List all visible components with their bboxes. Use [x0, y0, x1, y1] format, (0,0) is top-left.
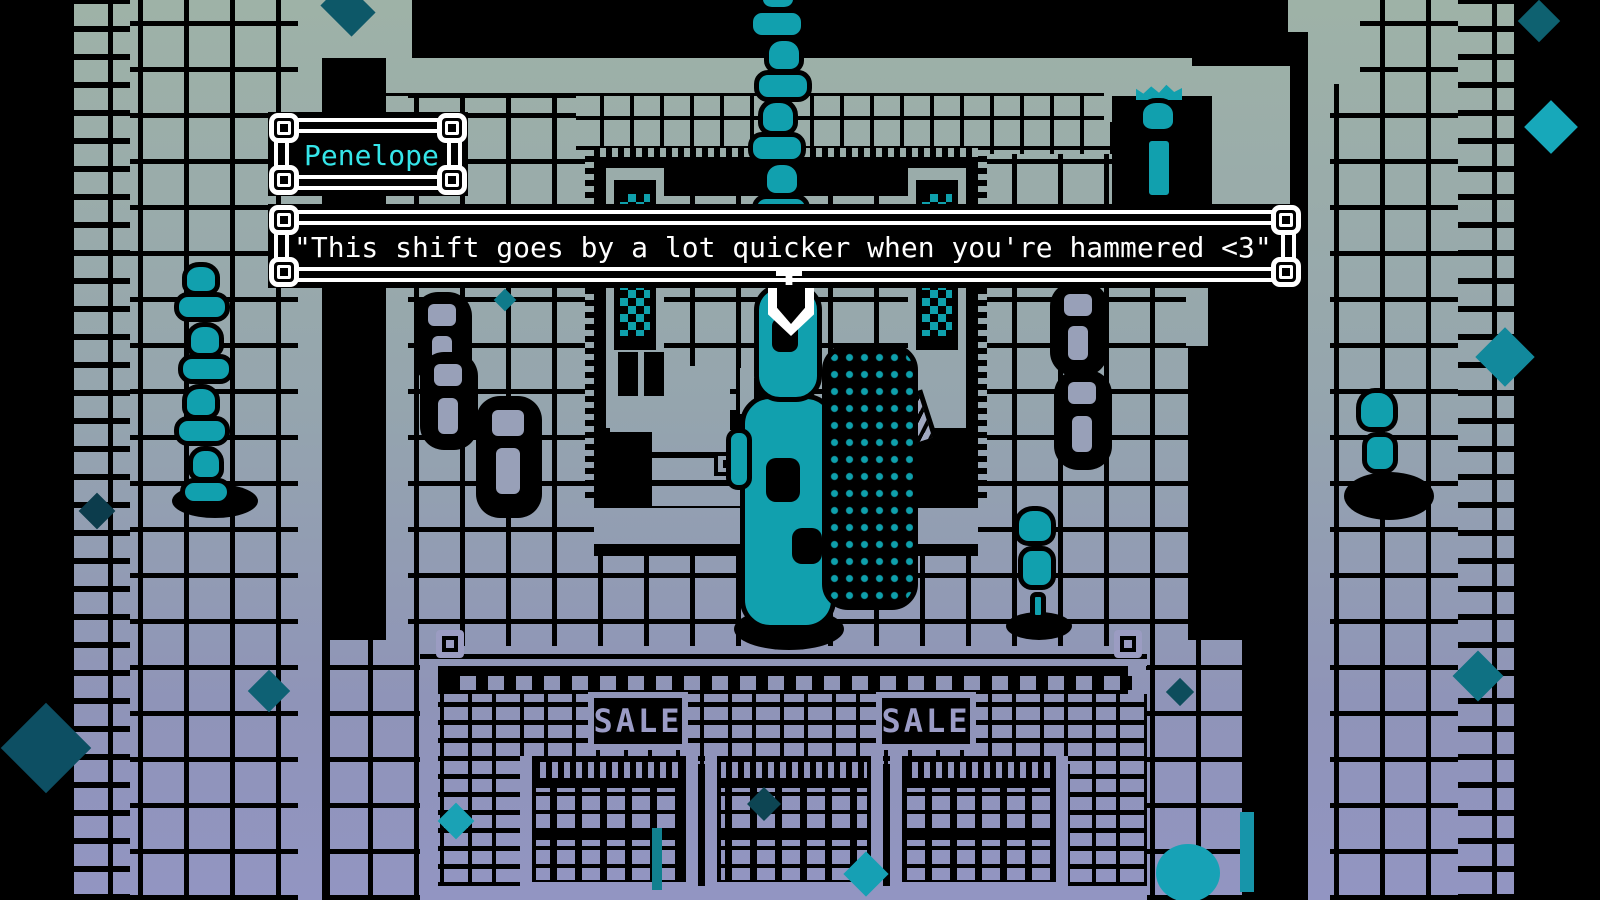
dialogue-text: "This shift goes by a lot quicker when y… — [294, 234, 1272, 262]
frame-screw — [269, 165, 299, 195]
store-left-floor — [330, 640, 422, 900]
bottle — [618, 352, 638, 396]
frame-bar — [447, 140, 462, 168]
frame-bar — [296, 118, 440, 133]
top-right-step-block — [1312, 32, 1360, 84]
particle — [652, 828, 662, 890]
particle — [1240, 812, 1254, 892]
sale-sign-label: SALE — [882, 698, 970, 744]
store-brick-right-column — [1070, 760, 1147, 888]
dark-customer-at-counter — [822, 344, 918, 610]
floor-machine — [1050, 282, 1108, 376]
rail-screw-left — [436, 630, 464, 658]
floor-machine — [1054, 370, 1112, 470]
speaker-name-label: Penelope — [304, 142, 439, 170]
frame-screw — [437, 113, 467, 143]
shelf-unit — [890, 756, 1068, 890]
floor-machine — [420, 352, 478, 450]
store-dashed-trim — [452, 676, 1132, 690]
corridor-customer — [1344, 388, 1434, 528]
frame-bar — [296, 210, 1274, 225]
frame-screw — [437, 165, 467, 195]
particle — [1156, 844, 1220, 900]
back-wall-windows — [576, 96, 1188, 154]
frame-screw — [1271, 257, 1301, 287]
particle — [1518, 0, 1560, 42]
bottle — [644, 352, 664, 396]
frame-bar — [274, 232, 289, 260]
sale-sign-left: SALE — [588, 692, 688, 750]
frame-screw — [1271, 205, 1301, 235]
right-corridor-wall — [1308, 0, 1330, 900]
store-left-post — [420, 646, 438, 900]
frame-screw — [269, 113, 299, 143]
store-brick-wall — [438, 694, 1147, 764]
top-right-step-block — [1288, 0, 1360, 32]
game-viewport: SALE SALE — [0, 0, 1600, 900]
customer-queue-left — [168, 262, 238, 522]
particle — [1524, 100, 1578, 154]
right-outer-pillar — [1458, 0, 1514, 900]
floor-machine — [476, 396, 542, 518]
sale-sign-label: SALE — [594, 698, 682, 744]
sale-sign-right: SALE — [876, 692, 976, 750]
left-outer-pillar — [74, 0, 130, 900]
frame-bar — [274, 140, 289, 168]
frame-bar — [1281, 232, 1296, 260]
walking-customer — [1006, 502, 1076, 642]
shelf-unit — [520, 756, 698, 890]
speaker-name-box: Penelope — [268, 112, 468, 196]
store-bottom-floor — [438, 886, 1147, 900]
dialogue-box[interactable]: "This shift goes by a lot quicker when y… — [268, 204, 1302, 288]
rail-screw-right — [1114, 630, 1142, 658]
frame-bar — [296, 175, 440, 190]
